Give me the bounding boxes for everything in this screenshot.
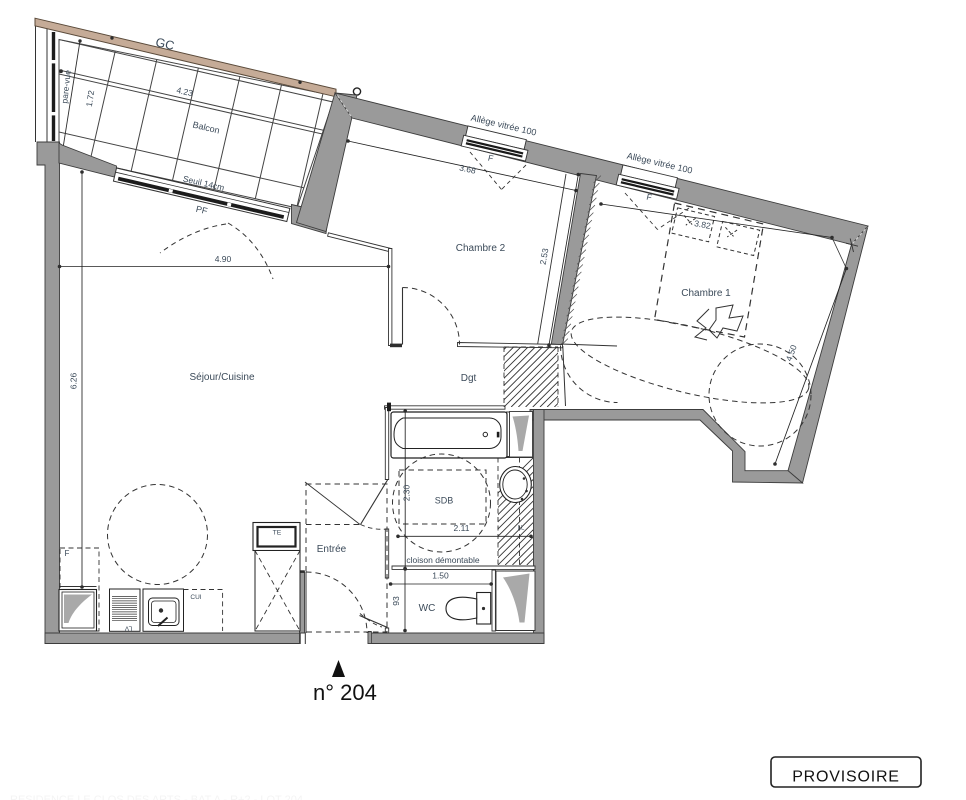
svg-text:Chambre 2: Chambre 2 [456, 243, 506, 254]
svg-text:cloison démontable: cloison démontable [406, 555, 480, 565]
svg-text:n° 204: n° 204 [313, 680, 377, 705]
svg-text:CUI: CUI [190, 594, 201, 601]
svg-text:1.50: 1.50 [432, 571, 449, 581]
svg-text:F: F [65, 549, 70, 558]
svg-text:WC: WC [419, 603, 436, 614]
svg-text:SDB: SDB [435, 496, 454, 506]
svg-text:4.90: 4.90 [215, 254, 232, 264]
svg-text:2.11: 2.11 [454, 523, 470, 533]
svg-text:PROVISOIRE: PROVISOIRE [792, 769, 900, 786]
svg-text:TE: TE [273, 530, 282, 537]
svg-text:Séjour/Cuisine: Séjour/Cuisine [189, 372, 254, 383]
svg-text:RESIDENCE LE CLOS DES ARTS: RESIDENCE LE CLOS DES ARTS - BAT A - R+2… [10, 794, 303, 800]
svg-text:2.30: 2.30 [402, 484, 412, 501]
svg-text:LV: LV [124, 625, 132, 632]
svg-text:6.26: 6.26 [69, 372, 79, 389]
svg-text:93: 93 [391, 596, 401, 606]
svg-text:Entrée: Entrée [317, 544, 347, 555]
svg-text:Dgt: Dgt [461, 373, 477, 384]
svg-text:Chambre 1: Chambre 1 [681, 288, 731, 299]
svg-text:LL: LL [518, 526, 525, 532]
